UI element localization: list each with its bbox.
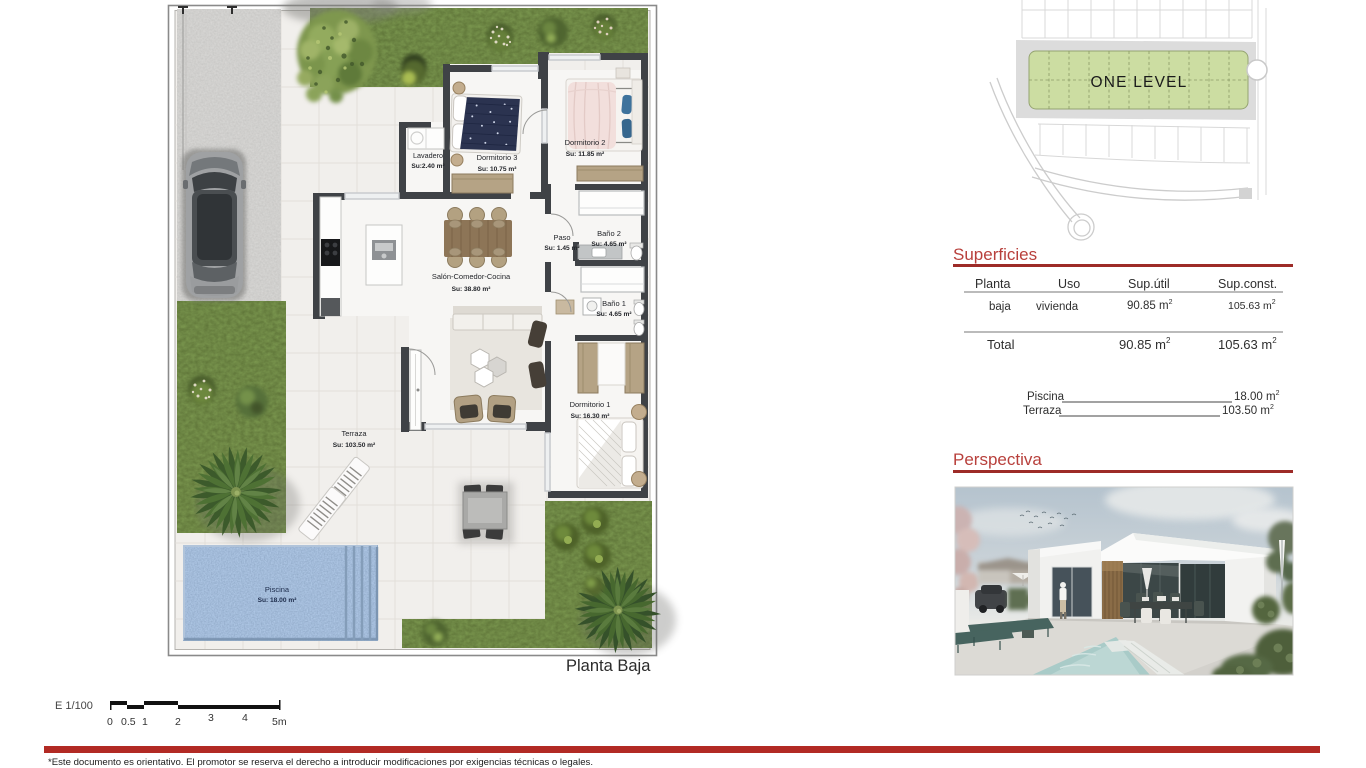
svg-text:Lavadero: Lavadero — [413, 151, 443, 160]
svg-text:90.85 m2: 90.85 m2 — [1127, 299, 1173, 312]
svg-text:E 1/100: E 1/100 — [55, 700, 93, 712]
svg-text:Piscina: Piscina — [1027, 391, 1065, 403]
svg-text:*Este documento es orientativo: *Este documento es orientativo. El promo… — [48, 757, 593, 768]
svg-text:Sup.útil: Sup.útil — [1128, 277, 1170, 291]
svg-text:Baño 2: Baño 2 — [597, 229, 621, 238]
svg-text:Dormitorio 1: Dormitorio 1 — [570, 400, 611, 409]
svg-text:2: 2 — [175, 716, 181, 728]
svg-text:Planta: Planta — [975, 277, 1010, 291]
svg-text:Su: 10.75 m²: Su: 10.75 m² — [478, 166, 518, 173]
svg-text:90.85 m2: 90.85 m2 — [1119, 336, 1171, 352]
svg-text:5m: 5m — [272, 716, 287, 728]
svg-text:105.63 m2: 105.63 m2 — [1228, 299, 1276, 312]
svg-text:Su: 4.65 m²: Su: 4.65 m² — [596, 311, 632, 318]
svg-text:vivienda: vivienda — [1036, 301, 1079, 313]
svg-text:Uso: Uso — [1058, 277, 1080, 291]
svg-text:3: 3 — [208, 712, 214, 724]
svg-text:Planta Baja: Planta Baja — [566, 657, 651, 675]
svg-text:18.00 m2: 18.00 m2 — [1234, 390, 1280, 403]
svg-text:Paso: Paso — [553, 233, 570, 242]
svg-text:0: 0 — [107, 716, 113, 728]
svg-text:Su:2.40 m²: Su:2.40 m² — [411, 163, 445, 170]
svg-text:Su: 1.45 m²: Su: 1.45 m² — [544, 245, 580, 252]
svg-text:Dormitorio 2: Dormitorio 2 — [565, 138, 606, 147]
svg-text:Perspectiva: Perspectiva — [953, 450, 1042, 469]
svg-text:Terraza: Terraza — [341, 429, 367, 438]
svg-text:Su: 16.30 m²: Su: 16.30 m² — [571, 413, 611, 420]
svg-text:Su: 4.65 m²: Su: 4.65 m² — [591, 241, 627, 248]
svg-text:Su: 103.50 m²: Su: 103.50 m² — [333, 442, 376, 449]
svg-text:baja: baja — [989, 301, 1011, 313]
svg-text:0.5: 0.5 — [121, 716, 136, 728]
svg-text:Su: 11.85 m²: Su: 11.85 m² — [566, 151, 605, 158]
svg-text:Terraza: Terraza — [1023, 405, 1062, 417]
svg-text:Su: 18.00 m²: Su: 18.00 m² — [258, 597, 298, 604]
svg-text:Dormitorio 3: Dormitorio 3 — [477, 153, 518, 162]
svg-text:Total: Total — [987, 337, 1015, 352]
svg-text:Superficies: Superficies — [953, 245, 1037, 264]
svg-text:4: 4 — [242, 712, 248, 724]
svg-text:Sup.const.: Sup.const. — [1218, 277, 1277, 291]
svg-text:1: 1 — [142, 716, 148, 728]
svg-text:ONE LEVEL: ONE LEVEL — [1091, 74, 1188, 91]
svg-text:Piscina: Piscina — [265, 585, 290, 594]
svg-text:103.50 m2: 103.50 m2 — [1222, 404, 1274, 417]
svg-text:Baño 1: Baño 1 — [602, 299, 626, 308]
svg-text:105.63 m2: 105.63 m2 — [1218, 336, 1277, 352]
svg-text:Salón-Comedor-Cocina: Salón-Comedor-Cocina — [432, 272, 511, 281]
svg-text:Su: 38.80 m²: Su: 38.80 m² — [452, 286, 492, 293]
